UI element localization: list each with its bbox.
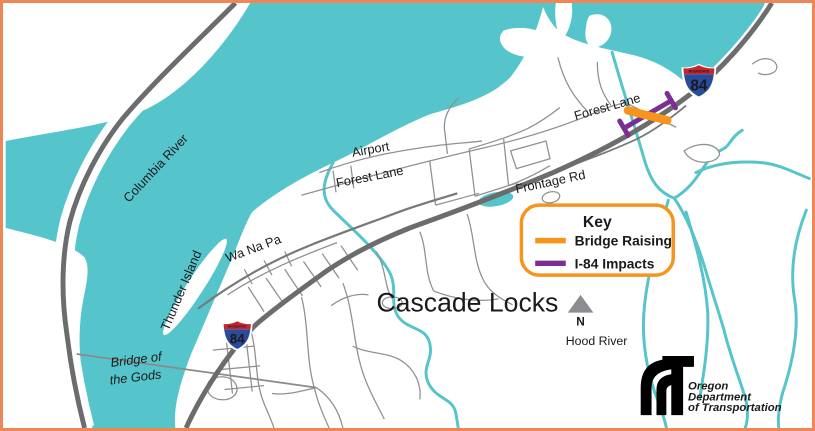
shield-number: 84 <box>690 77 707 94</box>
key-label-i84-impacts: I-84 Impacts <box>575 256 655 271</box>
stream-branch <box>778 210 806 428</box>
north-arrow: N <box>568 295 594 329</box>
north-label: N <box>576 314 585 328</box>
map: Columbia River Thunder Island Wa Na Pa A… <box>0 0 815 431</box>
map-canvas: Columbia River Thunder Island Wa Na Pa A… <box>3 3 812 428</box>
shield-number: 84 <box>230 331 245 346</box>
stream-branch <box>686 212 708 397</box>
odot-line3: of Transportation <box>688 402 782 414</box>
shield-interstate-text: INTERSTATE <box>228 325 246 329</box>
stream-branch <box>696 162 809 178</box>
north-arrow-icon <box>568 295 594 313</box>
label-forest-lane-west: Forest Lane <box>335 163 405 191</box>
key-label-bridge-raising: Bridge Raising <box>575 234 672 249</box>
odot-logo: Oregon Department of Transportation <box>641 356 782 415</box>
key-title: Key <box>583 214 612 231</box>
i84-shield-ne: INTERSTATE 84 <box>682 64 717 99</box>
odot-logo-text: Oregon Department of Transportation <box>688 381 782 415</box>
label-hood-river: Hood River <box>566 334 628 348</box>
label-town-cascade-locks: Cascade Locks <box>376 288 558 318</box>
stream-branch <box>674 130 742 198</box>
shield-interstate-text: INTERSTATE <box>689 69 710 73</box>
key-box: Key Bridge Raising I-84 Impacts <box>521 205 673 275</box>
